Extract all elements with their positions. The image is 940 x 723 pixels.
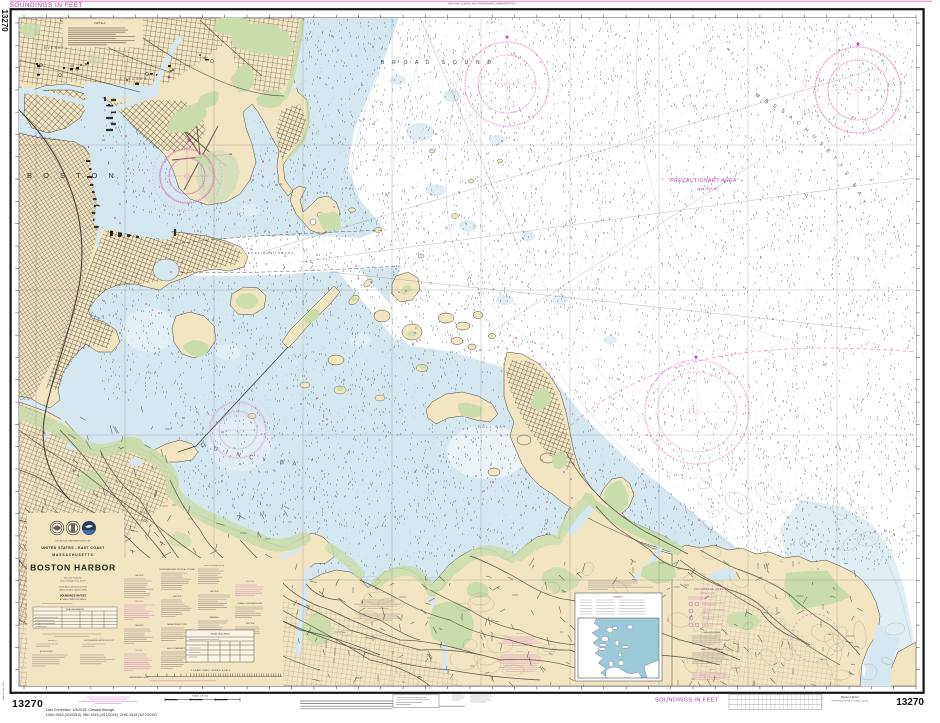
svg-text:NOTE F: NOTE F	[517, 633, 525, 635]
svg-text:UNITED STATES - EAST COAST: UNITED STATES - EAST COAST	[41, 546, 105, 550]
svg-text:NOTE A: NOTE A	[94, 21, 105, 25]
svg-text:AT MEAN LOWER LOW WATER: AT MEAN LOWER LOW WATER	[60, 598, 87, 601]
svg-text:THE NAUTICAL CHARTMAKERS SINCE: THE NAUTICAL CHARTMAKERS SINCE 1807	[55, 540, 90, 543]
svg-text:Boston Harbor: Boston Harbor	[841, 695, 859, 699]
svg-text:Scale 1:25,000 at Lat. 42°19': Scale 1:25,000 at Lat. 42°19'	[60, 580, 86, 583]
svg-text:HURRICANES AND TROPICAL STORMS: HURRICANES AND TROPICAL STORMS	[159, 568, 195, 571]
svg-text:“PRECAUTIONARY AREA”: “PRECAUTIONARY AREA”	[668, 178, 739, 184]
svg-text:13270: 13270	[12, 698, 43, 710]
svg-text:PRESIDENT ROADS: PRESIDENT ROADS	[248, 251, 295, 255]
svg-text:NOTE B: NOTE B	[709, 669, 716, 671]
svg-text:AUTHORITIES: AUTHORITIES	[40, 650, 53, 653]
svg-text:Mercator Projection: Mercator Projection	[64, 577, 81, 580]
svg-text:13270: 13270	[0, 10, 9, 33]
svg-text:SCALE 1:25,000: SCALE 1:25,000	[192, 695, 209, 698]
svg-text:SMALL CRAFT WARNINGS: SMALL CRAFT WARNINGS	[701, 648, 724, 651]
svg-text:B O S T O N: B O S T O N	[27, 171, 118, 180]
svg-text:NOTE B: NOTE B	[516, 651, 524, 653]
svg-text:Last Correction: 1/5/2015, Cl: Last Correction: 1/5/2015, Cleared throu…	[46, 708, 115, 712]
svg-text:LOGARITHMIC SPEED SCALE: LOGARITHMIC SPEED SCALE	[191, 669, 231, 672]
svg-text:44th Ed., Apr. 2015: 44th Ed., Apr. 2015	[2, 681, 5, 700]
svg-text:CAUTION: CAUTION	[246, 580, 255, 583]
svg-text:PLANE COORDINATE GRID: PLANE COORDINATE GRID	[238, 602, 263, 605]
svg-text:North American Datum of 1983: North American Datum of 1983	[59, 586, 87, 589]
svg-text:CAUTION: CAUTION	[135, 600, 144, 603]
svg-text:SOURCE: SOURCE	[613, 597, 623, 599]
svg-text:CAUTION: CAUTION	[210, 590, 219, 593]
svg-text:RADAR REFLECTORS: RADAR REFLECTORS	[167, 623, 188, 626]
svg-text:ANCHORAGE AREAS: ANCHORAGE AREAS	[694, 587, 726, 591]
svg-text:CHELSEA: CHELSEA	[120, 77, 148, 81]
svg-text:LNM: 0915 (3/3/2015), NM: 1515: LNM: 0915 (3/3/2015), NM: 1515 (4/11/201…	[46, 713, 157, 717]
svg-text:SOUNDINGS IN FEET: SOUNDINGS IN FEET	[60, 594, 87, 598]
svg-text:CAUTION: CAUTION	[135, 574, 144, 577]
svg-text:NOTE A: NOTE A	[136, 649, 144, 652]
svg-text:AIDS TO NAVIGATION: AIDS TO NAVIGATION	[167, 647, 187, 650]
svg-text:SOUNDINGS IN FEET: SOUNDINGS IN FEET	[655, 698, 719, 704]
svg-text:CAUTION: CAUTION	[173, 595, 182, 598]
svg-text:BOSTON HARBOR: BOSTON HARBOR	[30, 563, 116, 573]
svg-text:SOUNDINGS IN FEET: SOUNDINGS IN FEET	[10, 2, 83, 9]
svg-text:INSTRUMENTAL METEOROLOGY: INSTRUMENTAL METEOROLOGY	[84, 639, 115, 642]
svg-text:13270: 13270	[896, 697, 924, 708]
svg-text:(see note B): (see note B)	[697, 187, 718, 191]
svg-text:MASSACHUSETTS: MASSACHUSETTS	[52, 553, 93, 557]
svg-text:CAUTION: CAUTION	[246, 622, 255, 625]
svg-text:THE AID TIDAL WATER: THE AID TIDAL WATER	[210, 633, 230, 636]
svg-text:HULL BAY: HULL BAY	[478, 425, 507, 429]
svg-text:WARNING: WARNING	[209, 616, 219, 619]
svg-text:162.30 (see note F): 162.30 (see note F)	[700, 592, 715, 595]
svg-text:HEIGHTS: HEIGHTS	[48, 640, 57, 642]
svg-text:HULL ANCHORAGE: HULL ANCHORAGE	[704, 631, 721, 634]
svg-text:B R O A D S O U N D: B R O A D S O U N D	[381, 60, 494, 66]
svg-text:CAUTION: CAUTION	[135, 624, 144, 627]
svg-text:NATIONAL OCEANIC AND ATMOSPHER: NATIONAL OCEANIC AND ATMOSPHERIC ADMINIS…	[448, 3, 516, 6]
svg-text:POLLUTION REPORTS: POLLUTION REPORTS	[204, 565, 225, 567]
svg-text:TIDAL INFORMATION: TIDAL INFORMATION	[66, 608, 85, 611]
svg-text:SOUNDINGS IN FEET - SCALE 1:25: SOUNDINGS IN FEET - SCALE 1:25,000	[832, 700, 870, 703]
svg-text:(World Geodetic System 1984): (World Geodetic System 1984)	[59, 589, 87, 592]
